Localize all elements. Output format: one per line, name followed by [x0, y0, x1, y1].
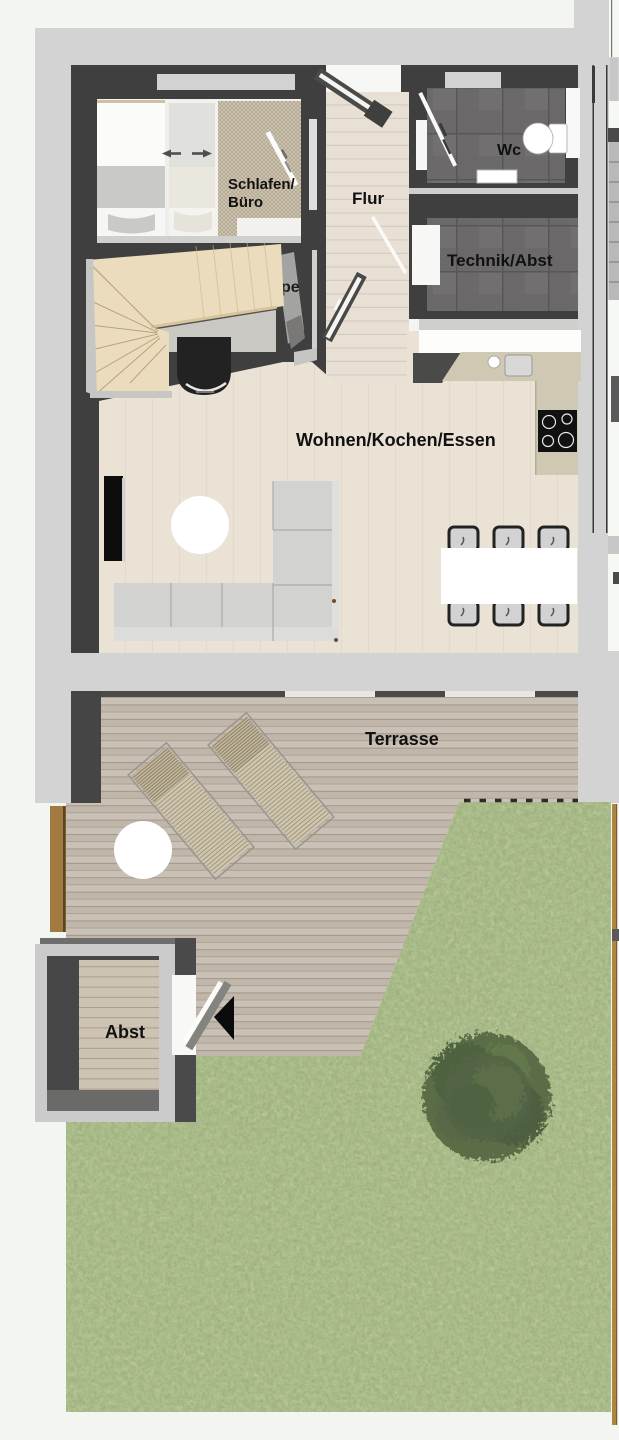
svg-text:Wohnen/Kochen/Essen: Wohnen/Kochen/Essen [296, 430, 496, 450]
svg-text:Flur: Flur [352, 189, 384, 208]
svg-text:Büro: Büro [228, 194, 263, 211]
svg-text:Wc: Wc [497, 142, 521, 159]
svg-text:pe: pe [281, 279, 300, 296]
svg-text:Schlafen/: Schlafen/ [228, 176, 296, 193]
svg-text:Terrasse: Terrasse [365, 729, 439, 749]
svg-text:Technik/Abst: Technik/Abst [447, 251, 553, 270]
svg-text:Abst: Abst [105, 1022, 145, 1042]
